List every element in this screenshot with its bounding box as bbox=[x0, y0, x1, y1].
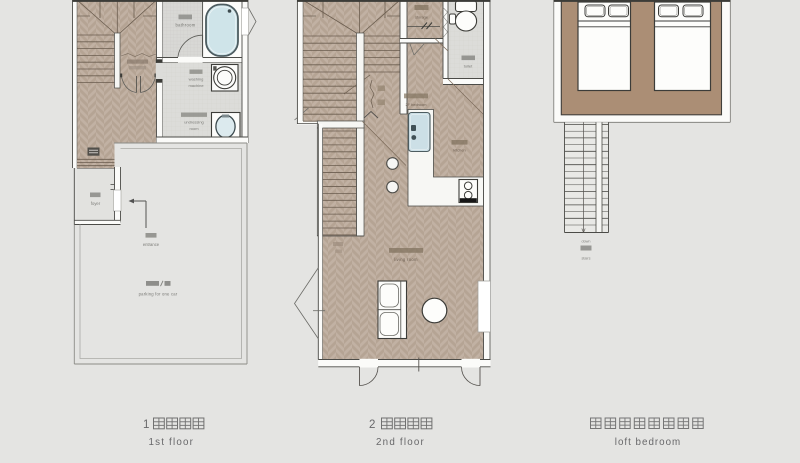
svg-text:foyer: foyer bbox=[91, 201, 101, 206]
svg-text:parking for one car: parking for one car bbox=[139, 292, 178, 297]
svg-text:storage: storage bbox=[415, 15, 428, 20]
svg-text:living room: living room bbox=[394, 257, 418, 262]
svg-text:stairs: stairs bbox=[581, 257, 590, 261]
svg-text:toilet: toilet bbox=[464, 64, 473, 69]
svg-text:2: 2 bbox=[369, 419, 375, 431]
svg-text:1: 1 bbox=[143, 419, 149, 431]
svg-text:2F bedroom: 2F bedroom bbox=[406, 102, 427, 107]
svg-text:1st floor: 1st floor bbox=[148, 437, 194, 448]
svg-text:washing: washing bbox=[189, 77, 204, 82]
svg-text:undressing: undressing bbox=[184, 120, 204, 125]
svg-text:kitchen: kitchen bbox=[453, 148, 465, 153]
svg-text:machine: machine bbox=[188, 83, 204, 88]
svg-text:entrance: entrance bbox=[143, 242, 160, 247]
svg-text:2nd floor: 2nd floor bbox=[376, 437, 425, 448]
svg-text:room: room bbox=[189, 126, 199, 131]
svg-text:bathroom: bathroom bbox=[175, 23, 195, 28]
svg-text:down: down bbox=[581, 240, 590, 244]
svg-text:loft bedroom: loft bedroom bbox=[615, 437, 681, 448]
